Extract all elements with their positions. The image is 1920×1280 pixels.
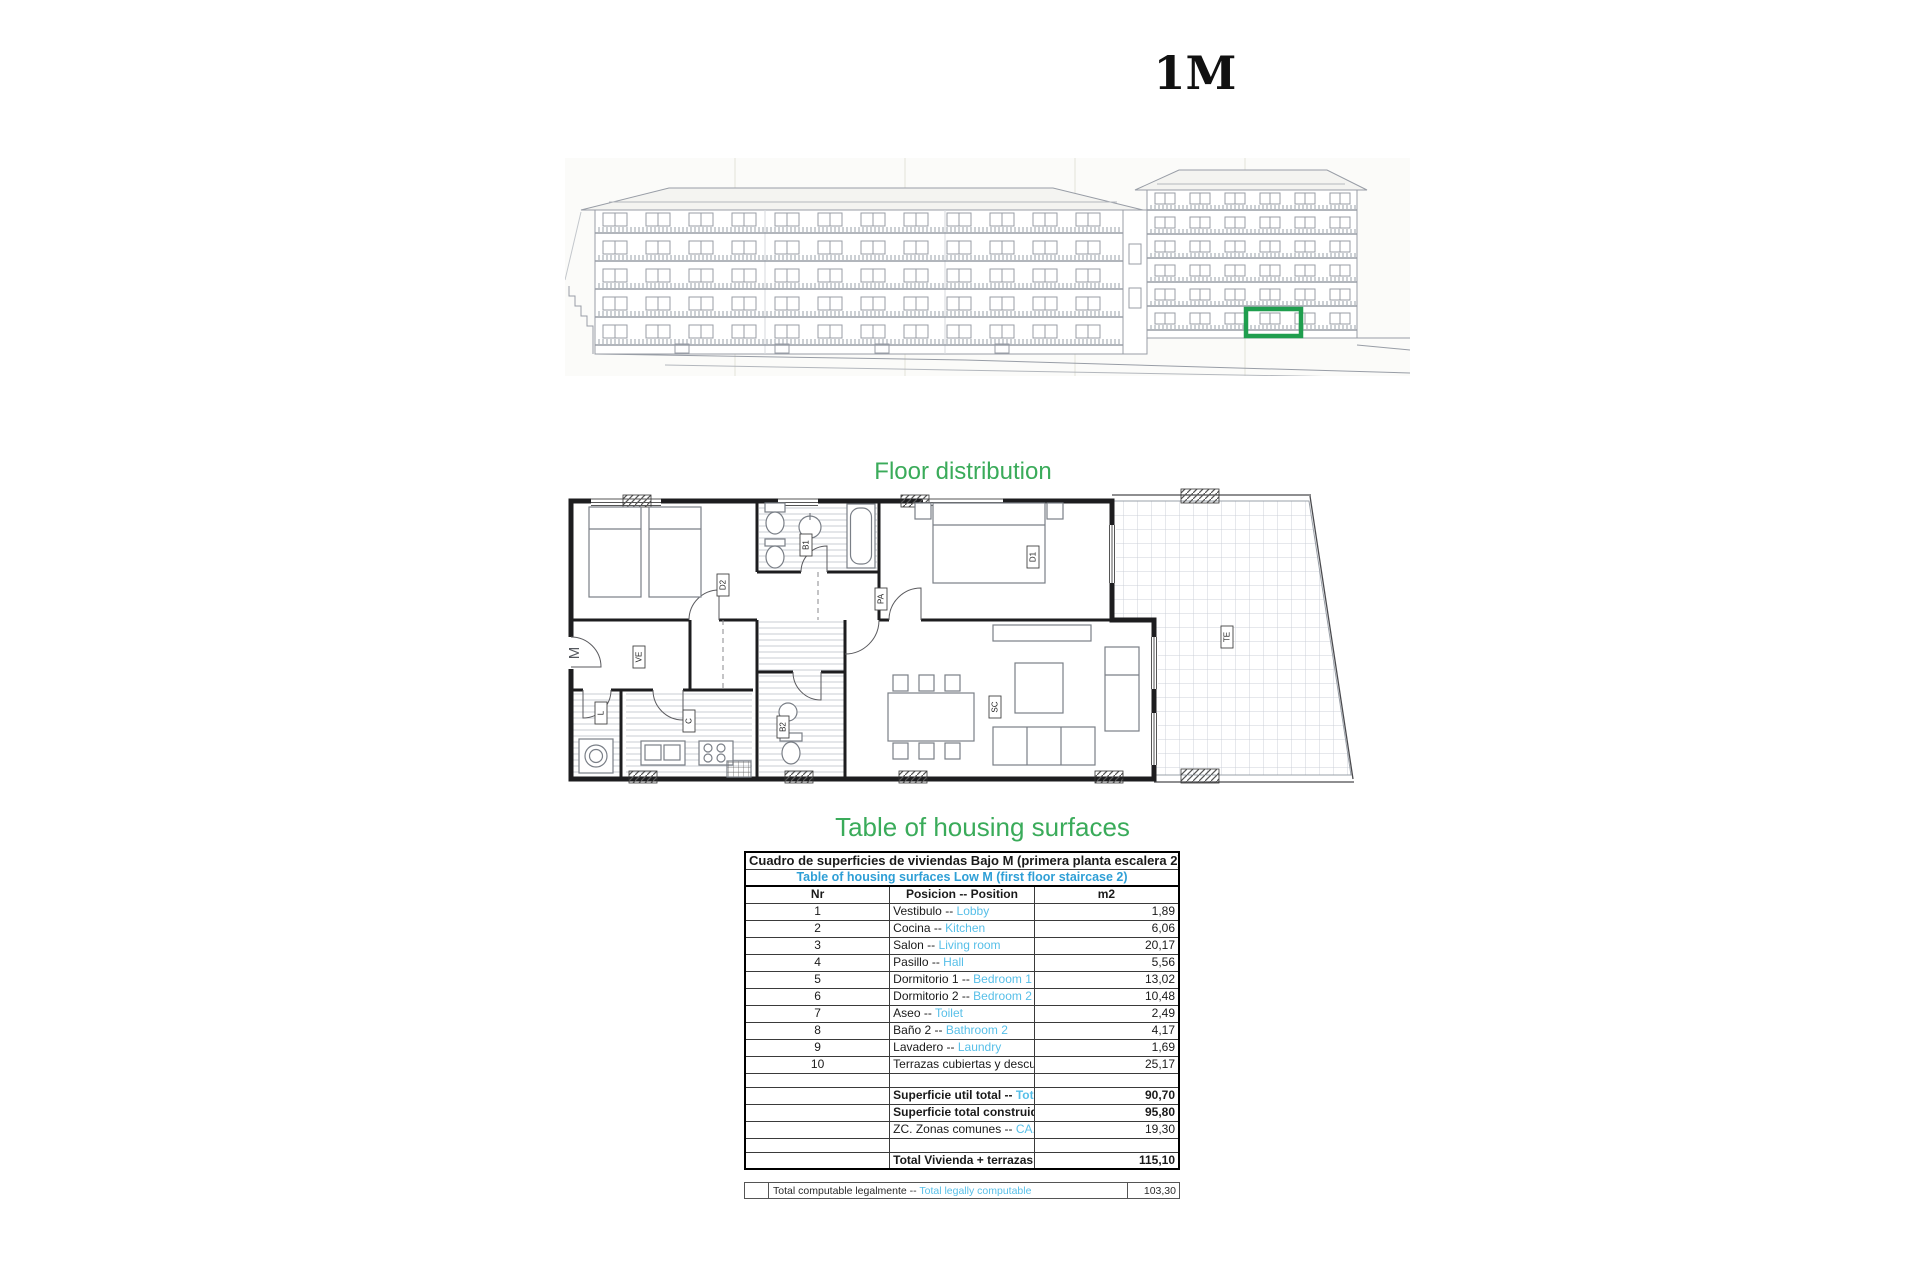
right-building-body xyxy=(1147,190,1357,338)
unit-title: 1M xyxy=(1120,46,1270,100)
cell-position: Dormitorio 2 -- Bedroom 2 xyxy=(890,988,1035,1005)
cell-m2: 19,30 xyxy=(1034,1121,1179,1138)
cell-m2: 115,10 xyxy=(1034,1152,1179,1169)
table-row: Total Vivienda + terrazas + ZC -- Total … xyxy=(745,1152,1179,1169)
table-row: 4Pasillo -- Hall5,56 xyxy=(745,954,1179,971)
table-row: 7Aseo -- Toilet2,49 xyxy=(745,1005,1179,1022)
cell-m2: 25,17 xyxy=(1034,1056,1179,1073)
cell-nr: 8 xyxy=(745,1022,890,1039)
cell-position: Cocina -- Kitchen xyxy=(890,920,1035,937)
table-row: 6Dormitorio 2 -- Bedroom 210,48 xyxy=(745,988,1179,1005)
room-label: C xyxy=(685,718,694,724)
property-sheet-page: 1M xyxy=(0,0,1920,1280)
cell-position: Terrazas cubiertas y descubiertas -- Cov… xyxy=(890,1056,1035,1073)
table-row: Superficie total construida -- Vivienda … xyxy=(745,1104,1179,1121)
cell-nr: 3 xyxy=(745,937,890,954)
room-label: PA xyxy=(877,593,886,604)
room-label: B2 xyxy=(779,722,788,732)
cell-m2 xyxy=(1034,1138,1179,1152)
table-subtitle-row: Table of housing surfaces Low M (first f… xyxy=(745,869,1179,886)
cell-nr xyxy=(745,1087,890,1104)
cell-nr xyxy=(745,1073,890,1087)
cell-nr: 5 xyxy=(745,971,890,988)
left-roof xyxy=(581,188,1143,210)
table-header-row: Nr Posicion -- Position m2 xyxy=(745,886,1179,903)
table-title-row: Cuadro de superficies de viviendas Bajo … xyxy=(745,852,1179,869)
cell-position xyxy=(890,1073,1035,1087)
cell-nr: 9 xyxy=(745,1039,890,1056)
cell-position: Vestibulo -- Lobby xyxy=(890,903,1035,920)
room-label: D2 xyxy=(719,579,728,590)
cell-m2: 2,49 xyxy=(1034,1005,1179,1022)
table-row: ZC. Zonas comunes -- CA. Common areas19,… xyxy=(745,1121,1179,1138)
cell-position: Pasillo -- Hall xyxy=(890,954,1035,971)
cell-position: Aseo -- Toilet xyxy=(890,1005,1035,1022)
table-row: 5Dormitorio 1 -- Bedroom 113,02 xyxy=(745,971,1179,988)
cell-nr xyxy=(745,1121,890,1138)
room-label: D1 xyxy=(1029,551,1038,562)
cell-position: Dormitorio 1 -- Bedroom 1 xyxy=(890,971,1035,988)
room-label: L xyxy=(597,710,606,715)
building-elevation xyxy=(565,158,1410,376)
table-row: 3Salon -- Living room20,17 xyxy=(745,937,1179,954)
cell-position: Lavadero -- Laundry xyxy=(890,1039,1035,1056)
surfaces-table: Cuadro de superficies de viviendas Bajo … xyxy=(744,851,1180,1170)
cell-position: ZC. Zonas comunes -- CA. Common areas xyxy=(890,1121,1035,1138)
cell-nr: 6 xyxy=(745,988,890,1005)
cell-position: Total Vivienda + terrazas + ZC -- Total … xyxy=(890,1152,1035,1169)
room-label: VE xyxy=(635,652,644,663)
table-row: 8Baño 2 -- Bathroom 24,17 xyxy=(745,1022,1179,1039)
table-row xyxy=(745,1138,1179,1152)
cell-m2: 13,02 xyxy=(1034,971,1179,988)
cell-m2: 10,48 xyxy=(1034,988,1179,1005)
table-row: 10Terrazas cubiertas y descubiertas -- C… xyxy=(745,1056,1179,1073)
floor-plan-drawing: MD2B1D1PAVELCB2SCTE xyxy=(563,487,1383,807)
surfaces-table-wrap: Cuadro de superficies de viviendas Bajo … xyxy=(744,851,1180,1199)
legal-total-table: Total computable legalmente -- Total leg… xyxy=(744,1182,1180,1199)
room-label: TE xyxy=(1223,632,1232,642)
room-label: SC xyxy=(991,701,1000,712)
unit-letter-label: M xyxy=(566,647,583,660)
cell-m2: 4,17 xyxy=(1034,1022,1179,1039)
building-elevation-drawing xyxy=(565,158,1410,376)
cell-m2: 20,17 xyxy=(1034,937,1179,954)
cell-position xyxy=(890,1138,1035,1152)
cell-nr xyxy=(745,1104,890,1121)
cell-position: Baño 2 -- Bathroom 2 xyxy=(890,1022,1035,1039)
cell-nr: 10 xyxy=(745,1056,890,1073)
cell-position: Superficie total construida -- Vivienda … xyxy=(890,1104,1035,1121)
cell-m2: 5,56 xyxy=(1034,954,1179,971)
table-row xyxy=(745,1073,1179,1087)
table-row: Superficie util total -- Total usable ar… xyxy=(745,1087,1179,1104)
stair-shaft xyxy=(1123,210,1147,354)
floor-plan: MD2B1D1PAVELCB2SCTE xyxy=(563,487,1383,807)
cell-nr xyxy=(745,1152,890,1169)
floor-distribution-heading: Floor distribution xyxy=(853,458,1073,486)
table-row: 1Vestibulo -- Lobby1,89 xyxy=(745,903,1179,920)
legal-total-row: Total computable legalmente -- Total leg… xyxy=(745,1183,1180,1199)
cell-position: Salon -- Living room xyxy=(890,937,1035,954)
cell-position: Superficie util total -- Total usable ar… xyxy=(890,1087,1035,1104)
cell-m2: 6,06 xyxy=(1034,920,1179,937)
room-label: B1 xyxy=(802,540,811,550)
surfaces-heading: Table of housing surfaces xyxy=(815,812,1150,843)
table-row: 2Cocina -- Kitchen6,06 xyxy=(745,920,1179,937)
cell-nr: 2 xyxy=(745,920,890,937)
cell-nr: 7 xyxy=(745,1005,890,1022)
table-row: 9Lavadero -- Laundry1,69 xyxy=(745,1039,1179,1056)
cell-nr: 1 xyxy=(745,903,890,920)
cell-m2: 95,80 xyxy=(1034,1104,1179,1121)
cell-m2: 90,70 xyxy=(1034,1087,1179,1104)
cell-m2: 1,89 xyxy=(1034,903,1179,920)
cell-nr: 4 xyxy=(745,954,890,971)
cell-m2: 1,69 xyxy=(1034,1039,1179,1056)
cell-nr xyxy=(745,1138,890,1152)
cell-m2 xyxy=(1034,1073,1179,1087)
